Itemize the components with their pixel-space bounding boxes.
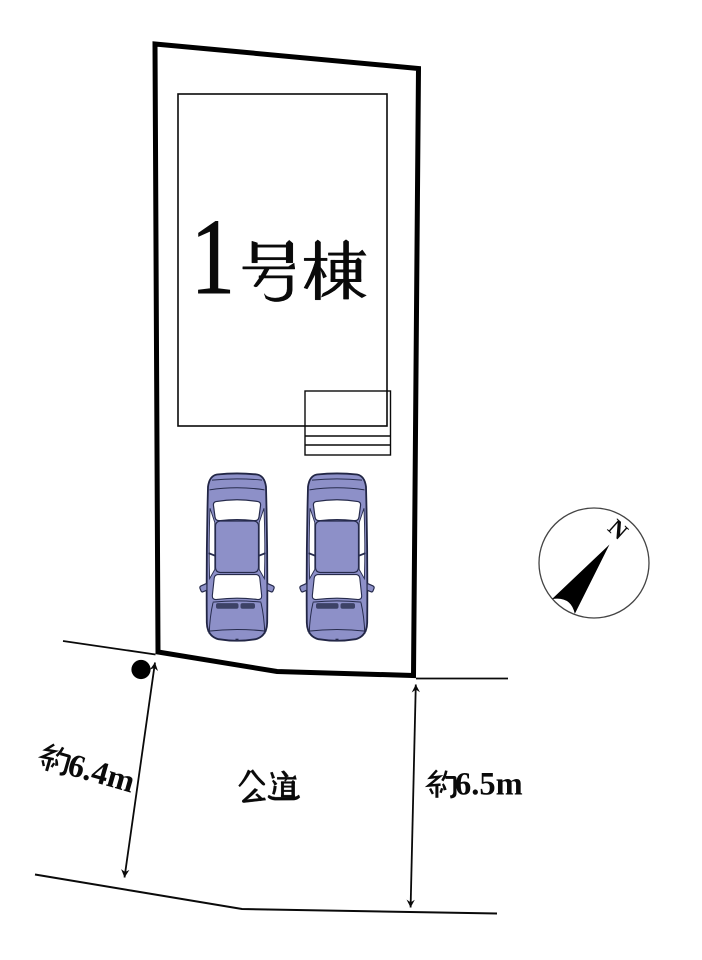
- svg-text:6.5m: 6.5m: [455, 767, 523, 803]
- svg-text:1: 1: [191, 198, 235, 317]
